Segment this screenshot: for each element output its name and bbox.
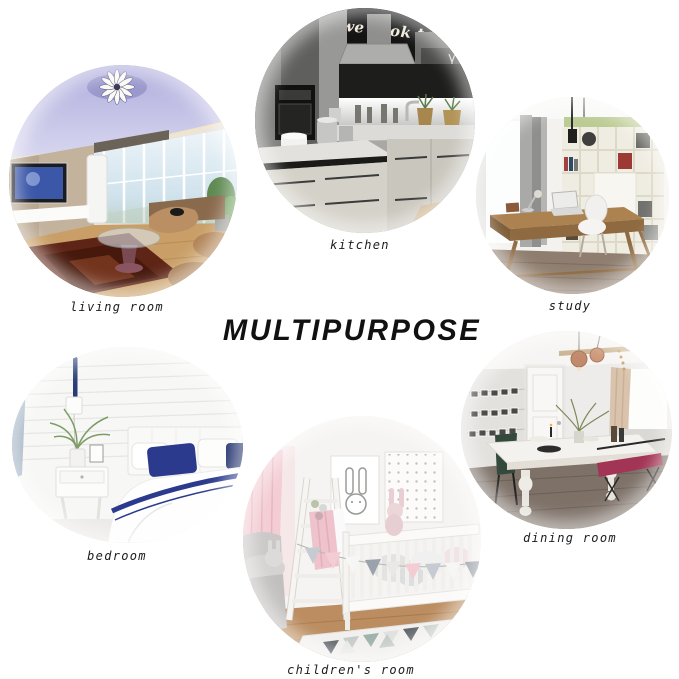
kitchen-photo: we cook tog bbox=[255, 8, 475, 233]
study-scene bbox=[476, 97, 669, 294]
kitchen-scene: we cook tog bbox=[255, 8, 475, 233]
photo-frame bbox=[90, 445, 103, 462]
ottoman bbox=[168, 262, 222, 292]
armchair bbox=[243, 532, 287, 636]
bedroom-label: bedroom bbox=[87, 549, 147, 563]
navy-pillow bbox=[147, 443, 198, 478]
hood-chimney bbox=[367, 14, 391, 44]
dining-room-scene bbox=[461, 331, 672, 529]
bedroom-scene bbox=[12, 347, 243, 543]
living-room-label: living room bbox=[70, 300, 164, 314]
books bbox=[506, 203, 520, 213]
green-accent bbox=[564, 117, 646, 127]
multipurpose-collage: MULTIPURPOSE bbox=[0, 0, 679, 679]
bookshelf bbox=[562, 127, 664, 263]
children-room-photo bbox=[243, 416, 481, 662]
living-room-photo bbox=[9, 65, 237, 297]
children-room-scene bbox=[243, 416, 481, 662]
living-room-scene bbox=[9, 65, 237, 297]
dining-room-photo bbox=[461, 331, 672, 529]
lower-cabinets bbox=[255, 162, 387, 233]
bedroom-photo bbox=[12, 347, 243, 543]
page-title: MULTIPURPOSE bbox=[223, 314, 481, 348]
backsplash bbox=[339, 64, 475, 98]
children-room-label: children's room bbox=[287, 663, 415, 677]
air-conditioner bbox=[87, 155, 107, 223]
dining-room-label: dining room bbox=[523, 531, 617, 545]
study-label: study bbox=[549, 299, 592, 313]
study-floor bbox=[476, 249, 669, 294]
study-photo bbox=[476, 97, 669, 294]
pendant-lamp bbox=[568, 129, 577, 143]
range-hood bbox=[339, 44, 415, 64]
ottoman bbox=[193, 232, 237, 258]
kitchen-label: kitchen bbox=[330, 238, 390, 252]
